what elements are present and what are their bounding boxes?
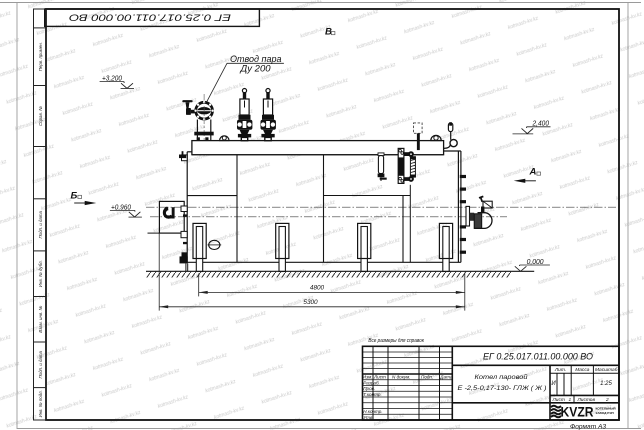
svg-text:Т.контр.: Т.контр. [363, 392, 382, 397]
svg-text:И: И [551, 381, 556, 387]
svg-text:Котел паровой: Котел паровой [475, 373, 528, 381]
svg-text:1:25: 1:25 [600, 381, 612, 387]
svg-text:Изм.: Изм. [363, 375, 373, 380]
svg-text:Масса: Масса [575, 367, 590, 373]
svg-text:Пров.: Пров. [363, 386, 375, 391]
svg-text:Дата: Дата [439, 375, 453, 380]
svg-text:Подп. и дата: Подп. и дата [38, 351, 43, 379]
svg-text:Справ. №: Справ. № [38, 106, 43, 126]
svg-text:2: 2 [605, 397, 609, 403]
svg-text:КОТЕЛЬНЫЙ: КОТЕЛЬНЫЙ [596, 406, 617, 410]
svg-text:ЕГ 0.25.017.011.00.000 ВО: ЕГ 0.25.017.011.00.000 ВО [483, 351, 593, 361]
svg-text:1: 1 [569, 397, 572, 403]
svg-text:KVZR: KVZR [561, 404, 594, 419]
svg-text:Масштаб: Масштаб [595, 367, 618, 373]
svg-text:Ду 200: Ду 200 [239, 64, 270, 74]
svg-text:Лит.: Лит. [554, 367, 566, 373]
svg-text:2,400: 2,400 [532, 118, 549, 127]
svg-text:ЕГ 0.25.017.011.00.000 ВО: ЕГ 0.25.017.011.00.000 ВО [68, 12, 231, 23]
svg-text:Подп.: Подп. [421, 375, 433, 380]
svg-text:Б: Б [71, 191, 78, 202]
svg-text:+0,960: +0,960 [111, 202, 131, 211]
svg-text:5300: 5300 [303, 299, 318, 306]
svg-text:Инв. № дубл.: Инв. № дубл. [38, 260, 43, 287]
svg-text:N докум.: N докум. [392, 375, 411, 380]
svg-text:А: А [529, 167, 537, 178]
svg-text:+3,200: +3,200 [102, 73, 122, 82]
svg-text:Лист: Лист [373, 375, 386, 380]
svg-text:Е -2,5-0,17-130- ГЛЖ ( Ж ): Е -2,5-0,17-130- ГЛЖ ( Ж ) [458, 385, 547, 392]
svg-text:Подп. и дата: Подп. и дата [38, 211, 43, 239]
svg-text:Листов: Листов [577, 397, 596, 403]
svg-text:Разраб.: Разраб. [363, 380, 380, 385]
svg-text:Формат А3: Формат А3 [570, 424, 606, 430]
svg-text:Все размеры для справок: Все размеры для справок [368, 338, 424, 344]
svg-text:Утв.: Утв. [363, 415, 373, 420]
svg-text:Взам. инв. №: Взам. инв. № [38, 305, 43, 332]
svg-text:4800: 4800 [310, 285, 325, 292]
svg-text:Перв. примен.: Перв. примен. [38, 42, 43, 71]
svg-text:Отвод пара: Отвод пара [230, 54, 282, 64]
svg-text:Н.контр.: Н.контр. [363, 409, 382, 414]
svg-text:Инв. № подл.: Инв. № подл. [38, 390, 43, 417]
svg-text:Лист: Лист [552, 397, 565, 403]
svg-text:ЗАВОД РЭП: ЗАВОД РЭП [596, 411, 615, 415]
